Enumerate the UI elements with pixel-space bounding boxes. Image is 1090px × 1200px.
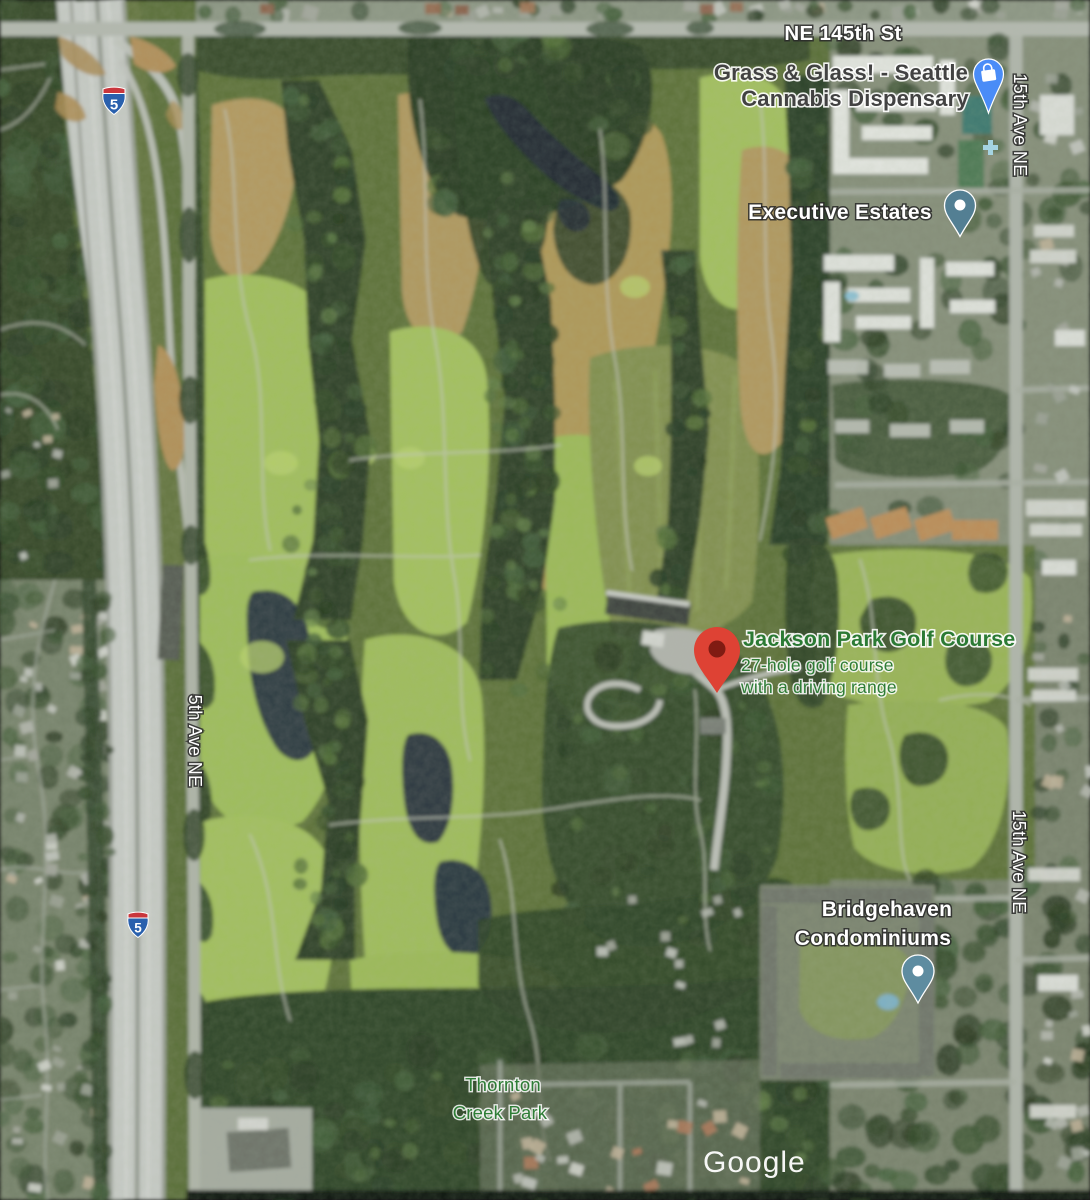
svg-text:15th Ave NE: 15th Ave NE <box>1009 810 1029 913</box>
svg-text:Creek Park: Creek Park <box>453 1102 548 1123</box>
svg-text:Cannabis Dispensary: Cannabis Dispensary <box>741 86 969 111</box>
svg-text:5: 5 <box>134 921 142 936</box>
svg-text:Executive Estates: Executive Estates <box>748 201 932 224</box>
svg-text:Grass & Glass! - Seattle: Grass & Glass! - Seattle <box>714 60 968 85</box>
svg-text:NE 145th St: NE 145th St <box>784 22 901 45</box>
svg-text:27-hole golf course: 27-hole golf course <box>741 655 894 675</box>
svg-text:Bridgehaven: Bridgehaven <box>822 898 953 921</box>
svg-text:5: 5 <box>110 97 118 114</box>
svg-text:Google: Google <box>703 1146 806 1179</box>
svg-text:with a driving range: with a driving range <box>740 677 897 697</box>
svg-text:Condominiums: Condominiums <box>795 927 951 950</box>
svg-text:Jackson Park Golf Course: Jackson Park Golf Course <box>743 627 1015 651</box>
svg-text:5th Ave NE: 5th Ave NE <box>185 695 205 788</box>
svg-text:Thornton: Thornton <box>465 1074 541 1095</box>
svg-text:15th Ave NE: 15th Ave NE <box>1010 73 1030 176</box>
